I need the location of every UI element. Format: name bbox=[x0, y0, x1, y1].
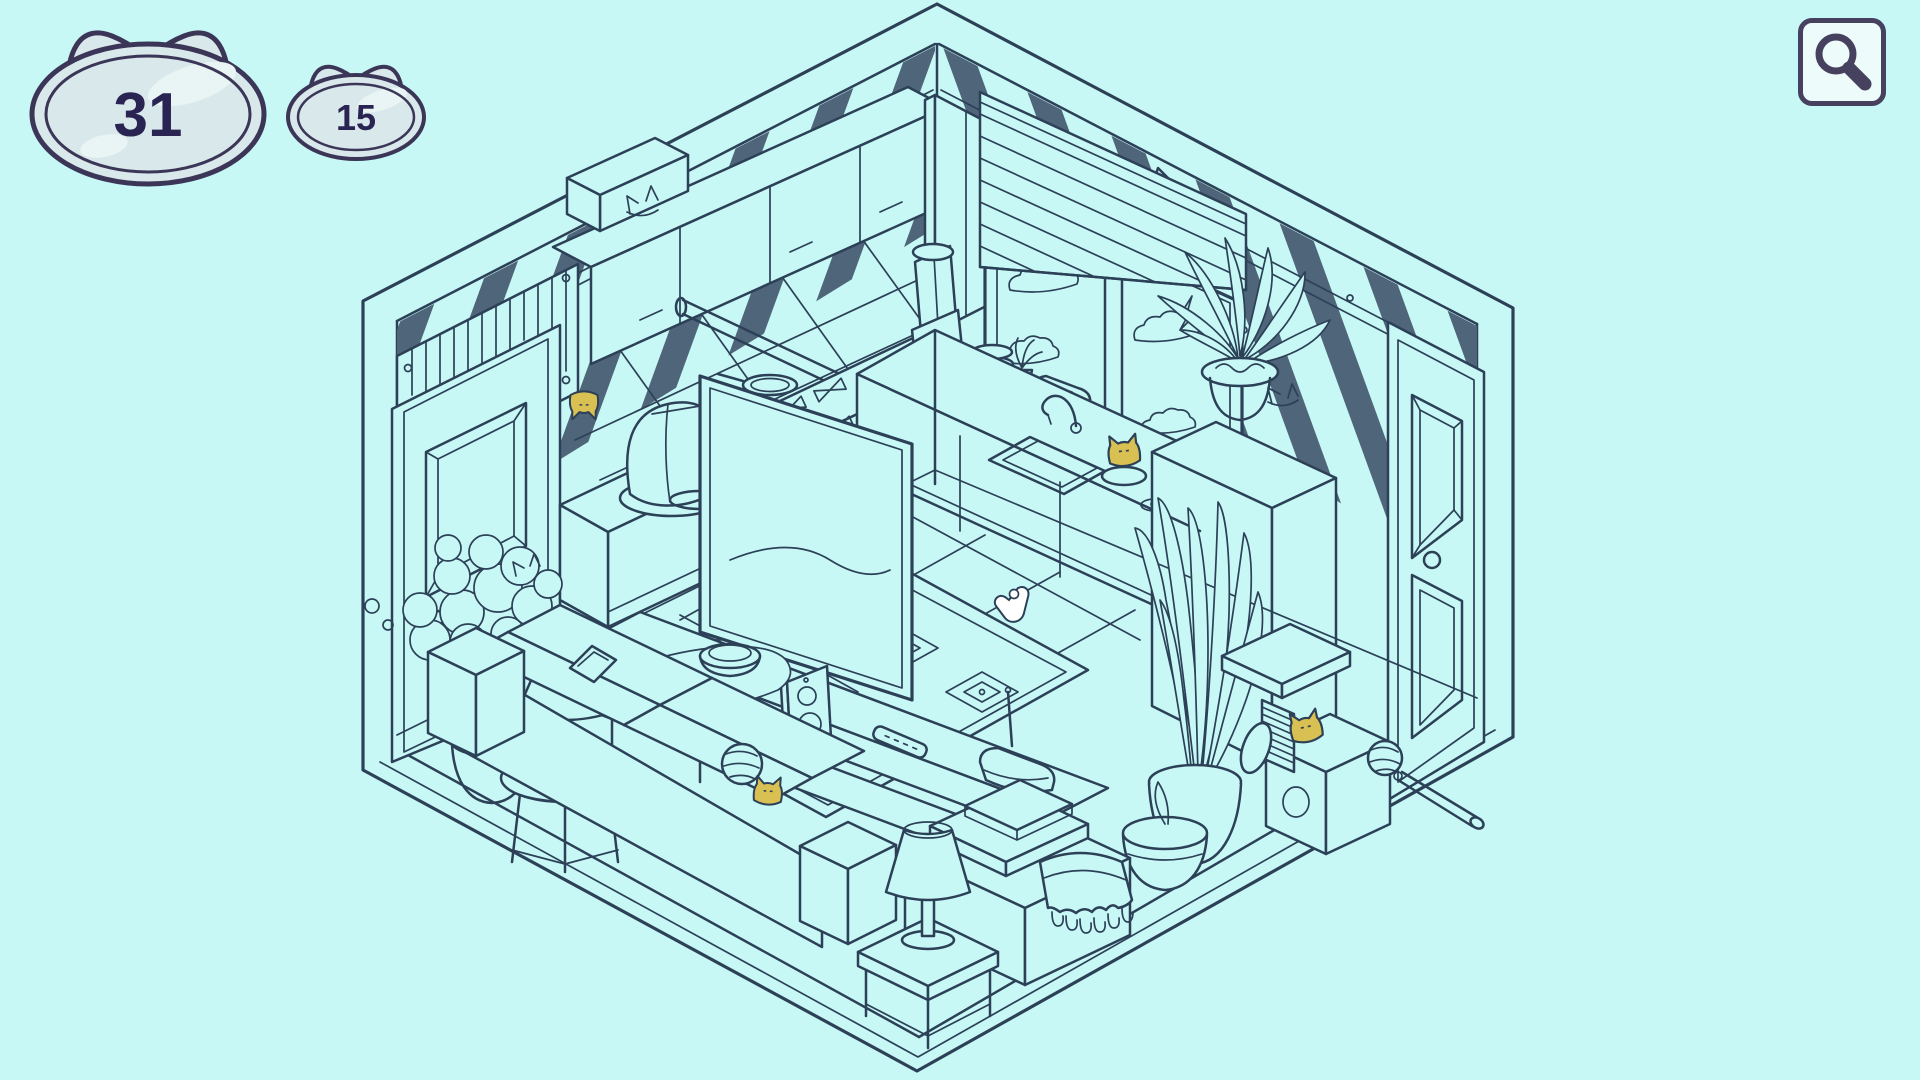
sofa-armrest-right bbox=[800, 822, 896, 944]
remaining-count: 15 bbox=[336, 97, 376, 138]
yarn-ball-on-sofa[interactable] bbox=[722, 744, 762, 784]
right-door-knob bbox=[1424, 552, 1440, 568]
magnifying-glass-icon bbox=[1809, 29, 1875, 95]
magnifier-button[interactable] bbox=[1798, 18, 1886, 106]
game-stage: 31 15 bbox=[0, 0, 1920, 1080]
found-count: 31 bbox=[114, 81, 183, 150]
remaining-counter-badge: 15 bbox=[280, 48, 432, 166]
sofa-armrest-left bbox=[428, 628, 524, 756]
pet-bowl bbox=[1102, 467, 1146, 485]
right-door[interactable] bbox=[1388, 322, 1484, 800]
found-counter-badge: 31 bbox=[22, 6, 274, 188]
score-hud: 31 15 bbox=[22, 6, 432, 188]
yarn-ball-by-cat-tree[interactable] bbox=[1368, 741, 1402, 775]
